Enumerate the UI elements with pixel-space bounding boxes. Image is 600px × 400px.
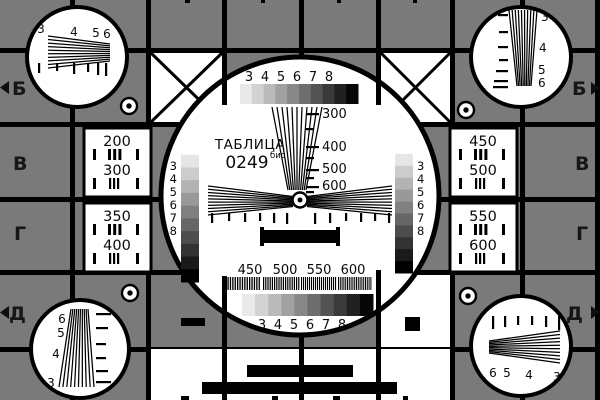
- line-group-bar: [479, 149, 482, 160]
- burst-stripe: [256, 277, 257, 290]
- burst-stripe: [227, 277, 228, 290]
- burst-stripe: [349, 277, 350, 290]
- strip-label: 4: [417, 172, 424, 186]
- target-icon: [122, 285, 138, 301]
- row-letter: В: [575, 153, 589, 175]
- row-letter: Д: [9, 303, 26, 325]
- line-group-bar: [479, 224, 482, 235]
- line-group-bar: [109, 253, 111, 264]
- row-letter: Д: [566, 303, 583, 325]
- line-group-bar: [93, 224, 96, 235]
- burst-stripe: [356, 277, 357, 290]
- tick-mark: [96, 370, 108, 372]
- wedge-label: 5: [538, 63, 546, 77]
- line-group-bar: [108, 224, 111, 235]
- burst-stripe: [345, 277, 346, 290]
- tick-mark: [494, 80, 508, 82]
- burst-stripe: [270, 277, 271, 290]
- strip-label: 4: [170, 172, 177, 186]
- box-label: 350: [103, 209, 131, 225]
- row-letter: Г: [576, 223, 588, 245]
- burst-stripe: [309, 277, 310, 290]
- scale-label: 7: [322, 318, 330, 333]
- burst-stripe: [247, 277, 248, 290]
- burst-stripe: [230, 277, 231, 290]
- tick-mark: [87, 63, 89, 72]
- burst-stripe: [358, 277, 359, 290]
- line-group-bar: [483, 178, 485, 189]
- line-group-bar: [475, 178, 477, 189]
- line-group-bar: [136, 178, 139, 189]
- burst-stripe: [251, 277, 252, 290]
- box-label: 300: [103, 163, 131, 179]
- line-group-bar: [136, 149, 139, 160]
- strip-label: 3: [170, 159, 177, 173]
- tick-mark: [96, 327, 108, 329]
- wedge-scale-label: 600: [322, 179, 347, 194]
- target-icon: [460, 288, 476, 304]
- line-group-bar: [117, 253, 119, 264]
- tick-mark: [306, 169, 319, 171]
- card-number: 0249: [225, 153, 268, 173]
- tick-mark: [374, 213, 376, 221]
- grayscale-step: [395, 249, 413, 261]
- row-letter: Г: [14, 223, 26, 245]
- burst-stripe: [338, 277, 339, 290]
- tick-mark: [499, 59, 508, 61]
- wedge-label: 4: [52, 347, 60, 361]
- strip-label: 6: [417, 198, 424, 212]
- strip-label: 5: [417, 185, 424, 199]
- burst-stripe: [283, 277, 284, 290]
- line-group-bar: [474, 149, 477, 160]
- grayscale-step: [395, 142, 413, 154]
- burst-stripe: [323, 277, 324, 290]
- grayscale-step: [346, 84, 358, 104]
- burst-stripe: [354, 277, 355, 290]
- grayscale-step: [252, 84, 264, 104]
- tick-mark: [96, 313, 111, 315]
- grayscale-step: [294, 294, 308, 316]
- line-group-bar: [108, 149, 111, 160]
- tick-mark: [96, 381, 111, 383]
- line-group-bar: [113, 149, 116, 160]
- wedge-label: 3: [37, 22, 45, 36]
- burst-stripe: [335, 277, 336, 290]
- burst-stripe: [285, 277, 286, 290]
- grayscale-step: [334, 84, 346, 104]
- scale-label: 6: [293, 70, 301, 85]
- burst-stripe: [317, 277, 318, 290]
- wedge-label: 5: [92, 26, 100, 40]
- grayscale-step: [181, 231, 199, 244]
- burst-stripe: [321, 277, 322, 290]
- grayscale-step: [268, 294, 282, 316]
- grayscale-step: [181, 244, 199, 257]
- strip-label: 8: [170, 224, 177, 238]
- grayscale-step: [299, 84, 311, 104]
- tick-mark: [306, 186, 319, 188]
- burst-stripe: [303, 277, 304, 290]
- tick-mark: [38, 63, 40, 73]
- line-group-bar: [459, 149, 462, 160]
- tick-mark: [314, 213, 316, 224]
- line-group-bar: [484, 149, 487, 160]
- burst-stripe: [225, 277, 226, 290]
- line-group-bar: [136, 253, 139, 264]
- target-icon: [121, 98, 137, 114]
- wedge-scale-label: 400: [322, 140, 347, 155]
- wedge-label: 6: [58, 312, 66, 326]
- tick-mark: [286, 213, 288, 224]
- burst-stripe: [235, 277, 236, 290]
- tick-mark: [492, 316, 494, 329]
- burst-stripe: [232, 277, 233, 290]
- grayscale-step: [395, 261, 413, 273]
- grayscale-step: [334, 294, 348, 316]
- burst-stripe: [265, 277, 266, 290]
- burst-stripe: [307, 277, 308, 290]
- burst-stripe: [287, 277, 288, 290]
- grayscale-step: [311, 84, 323, 104]
- burst-stripe: [289, 277, 290, 290]
- scale-label: 3: [245, 70, 253, 85]
- grayscale-step: [395, 190, 413, 202]
- grayscale-step: [395, 166, 413, 178]
- row-letter: В: [13, 153, 27, 175]
- burst-stripe: [369, 277, 370, 290]
- wedge-label: 3: [553, 370, 561, 384]
- burst-stripe: [351, 277, 352, 290]
- box-label: 600: [469, 238, 497, 254]
- tick-mark: [345, 213, 347, 221]
- tick-mark: [558, 316, 560, 330]
- grayscale-step: [281, 294, 295, 316]
- grayscale-step: [181, 206, 199, 219]
- burst-stripe: [305, 277, 306, 290]
- line-group-bar: [93, 178, 96, 189]
- wedge-label: 5: [503, 366, 511, 380]
- wedge-label: 4: [525, 368, 533, 382]
- burst-stripe: [237, 277, 238, 290]
- wedge-scale-label: 500: [322, 162, 347, 177]
- grayscale-step: [181, 257, 199, 270]
- burst-stripe: [313, 277, 314, 290]
- burst-stripe: [327, 277, 328, 290]
- line-group-bar: [475, 253, 477, 264]
- tick-mark: [228, 213, 230, 221]
- scale-label: 7: [309, 70, 317, 85]
- grayscale-step: [181, 269, 199, 282]
- wedge-label: 3: [541, 10, 549, 24]
- grayscale-step: [321, 294, 335, 316]
- strip-label: 7: [417, 211, 424, 225]
- tick-mark: [306, 146, 319, 148]
- burst-stripe: [242, 277, 243, 290]
- wedge-label: 6: [489, 366, 497, 380]
- tick-mark: [360, 213, 362, 222]
- grayscale-step: [360, 294, 374, 316]
- wedge-label: 5: [57, 326, 65, 340]
- burst-stripe: [278, 277, 279, 290]
- grayscale-step: [240, 84, 252, 104]
- burst-stripe: [331, 277, 332, 290]
- tick-mark: [388, 213, 390, 223]
- tick-mark: [498, 14, 508, 16]
- burst-stripe: [319, 277, 320, 290]
- tick-mark: [531, 316, 533, 325]
- grayscale-step: [395, 154, 413, 166]
- scale-label: 4: [274, 318, 282, 333]
- burst-stripe: [254, 277, 255, 290]
- strip-label: 6: [170, 198, 177, 212]
- burst-stripe: [239, 277, 240, 290]
- black-square-right: [405, 317, 420, 331]
- tick-mark: [517, 316, 519, 325]
- wedge-label: 3: [47, 376, 55, 390]
- line-group-bar: [483, 253, 485, 264]
- burst-stripe: [292, 277, 293, 290]
- grayscale-step: [395, 178, 413, 190]
- burst-stripe: [360, 277, 361, 290]
- grayscale-step: [395, 213, 413, 225]
- tick-mark: [96, 357, 106, 359]
- grayscale-step: [181, 180, 199, 193]
- burst-stripe: [329, 277, 330, 290]
- line-group-bar: [502, 178, 505, 189]
- line-group-bar: [113, 253, 115, 264]
- tick-mark: [259, 213, 261, 221]
- burst-stripe: [294, 277, 295, 290]
- scale-label: 3: [258, 318, 266, 333]
- line-group-bar: [459, 253, 462, 264]
- tick-mark: [545, 316, 547, 327]
- line-group-bar: [118, 224, 121, 235]
- burst-stripe: [249, 277, 250, 290]
- tv-test-card: Б В Г Д Б В Г Д 3 4 5 6 3 4 5 6 6 5 4 3 …: [0, 0, 600, 400]
- tick-mark: [499, 31, 508, 33]
- scale-label: 5: [277, 70, 285, 85]
- center-target-icon: [293, 193, 308, 208]
- black-rect-left: [181, 318, 205, 326]
- burst-stripe: [315, 277, 316, 290]
- grayscale-step: [264, 84, 276, 104]
- tick-mark: [96, 343, 106, 345]
- wedge-scale-label: 300: [322, 107, 347, 122]
- burst-stripe: [363, 277, 364, 290]
- tick-mark: [329, 213, 331, 223]
- tick-mark: [306, 113, 319, 115]
- burst-stripe: [274, 277, 275, 290]
- scale-label: 8: [325, 70, 333, 85]
- tick-mark: [244, 213, 246, 222]
- grayscale-step: [323, 84, 335, 104]
- grayscale-step: [181, 193, 199, 206]
- wedge-label: 4: [539, 41, 547, 55]
- burst-stripe: [325, 277, 326, 290]
- freq-label: 450: [238, 263, 263, 278]
- tick-mark: [306, 157, 314, 159]
- wedge-label: 6: [103, 27, 111, 41]
- line-group-bar: [136, 224, 139, 235]
- burst-stripe: [272, 277, 273, 290]
- line-group-bar: [93, 253, 96, 264]
- wedge-label: 6: [538, 76, 546, 90]
- box-label: 200: [103, 134, 131, 150]
- burst-stripe: [343, 277, 344, 290]
- grayscale-step: [287, 84, 299, 104]
- scale-label: 8: [338, 318, 346, 333]
- line-group-bar: [109, 178, 111, 189]
- box-label: 450: [469, 134, 497, 150]
- line-group-bar: [484, 224, 487, 235]
- grayscale-step: [181, 167, 199, 180]
- burst-stripe: [370, 277, 371, 290]
- line-group-bar: [479, 253, 481, 264]
- strip-label: 5: [170, 185, 177, 199]
- burst-stripe: [281, 277, 282, 290]
- burst-stripe: [333, 277, 334, 290]
- scale-label: 4: [261, 70, 269, 85]
- line-group-bar: [113, 178, 115, 189]
- tick-mark: [273, 213, 275, 223]
- burst-stripe: [367, 277, 368, 290]
- freq-label: 550: [307, 263, 332, 278]
- burst-stripe: [361, 277, 362, 290]
- burst-stripe: [342, 277, 343, 290]
- tick-mark: [496, 70, 508, 72]
- line-group-bar: [117, 178, 119, 189]
- burst-stripe: [311, 277, 312, 290]
- tick-mark: [306, 191, 314, 193]
- tick-mark: [504, 316, 506, 327]
- line-group-bar: [113, 224, 116, 235]
- grayscale-step: [181, 218, 199, 231]
- tick-mark: [56, 63, 58, 71]
- test-card-art: Б В Г Д Б В Г Д 3 4 5 6 3 4 5 6 6 5 4 3 …: [0, 0, 600, 400]
- wedge-label: 4: [70, 25, 78, 39]
- burst-stripe: [259, 277, 260, 290]
- line-group-bar: [502, 224, 505, 235]
- freq-label: 500: [273, 263, 298, 278]
- line-group-bar: [459, 178, 462, 189]
- row-letter: Б: [572, 78, 586, 100]
- row-letter: Б: [12, 78, 26, 100]
- box-label: 550: [469, 209, 497, 225]
- grayscale-step: [395, 237, 413, 249]
- grayscale-step: [275, 84, 287, 104]
- tick-mark: [498, 46, 508, 48]
- strip-label: 7: [170, 211, 177, 225]
- burst-stripe: [365, 277, 366, 290]
- line-group-bar: [502, 149, 505, 160]
- bottom-bar-long: [202, 382, 397, 394]
- grayscale-step: [255, 294, 269, 316]
- line-group-bar: [479, 178, 481, 189]
- grayscale-step: [395, 225, 413, 237]
- line-group-bar: [502, 253, 505, 264]
- line-group-bar: [459, 224, 462, 235]
- grayscale-step: [181, 142, 199, 155]
- burst-stripe: [298, 277, 299, 290]
- tick-mark: [105, 63, 107, 76]
- grayscale-step: [181, 155, 199, 168]
- burst-stripe: [276, 277, 277, 290]
- bottom-bar-short: [247, 365, 353, 377]
- line-group-bar: [93, 149, 96, 160]
- burst-stripe: [244, 277, 245, 290]
- burst-stripe: [267, 277, 268, 290]
- burst-stripe: [263, 277, 264, 290]
- card-number-suffix: бис: [270, 151, 286, 161]
- line-group-bar: [118, 149, 121, 160]
- burst-stripe: [296, 277, 297, 290]
- tick-mark: [211, 213, 213, 223]
- box-label: 500: [469, 163, 497, 179]
- scale-label: 5: [290, 318, 298, 333]
- box-label: 400: [103, 238, 131, 254]
- burst-stripe: [301, 277, 302, 290]
- strip-label: 8: [417, 224, 424, 238]
- grayscale-step: [308, 294, 322, 316]
- freq-label: 600: [341, 263, 366, 278]
- line-group-bar: [474, 224, 477, 235]
- tick-mark: [493, 86, 508, 88]
- grayscale-step: [347, 294, 361, 316]
- tick-mark: [306, 177, 314, 179]
- grayscale-step: [395, 202, 413, 214]
- scale-label: 6: [306, 318, 314, 333]
- grayscale-step: [242, 294, 256, 316]
- tick-mark: [306, 128, 314, 130]
- burst-stripe: [340, 277, 341, 290]
- target-icon: [458, 102, 474, 118]
- strip-label: 3: [417, 159, 424, 173]
- tick-mark: [97, 63, 99, 75]
- burst-stripe: [352, 277, 353, 290]
- burst-stripe: [347, 277, 348, 290]
- tick-mark: [73, 63, 75, 74]
